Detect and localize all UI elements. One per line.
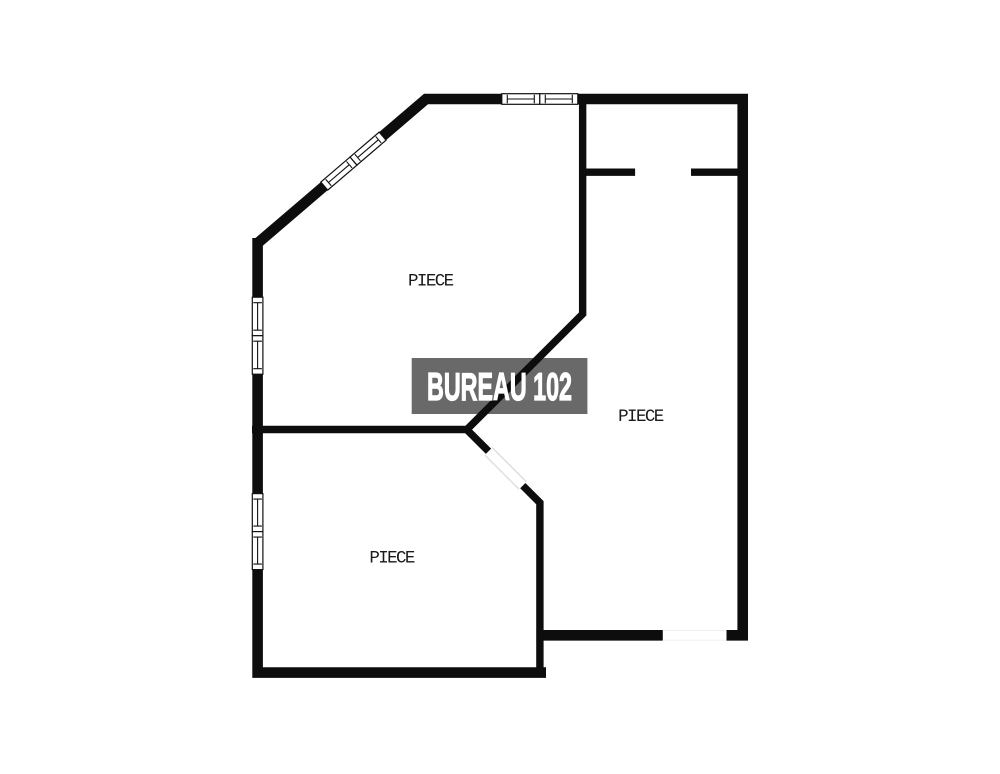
- svg-text:PIECE: PIECE: [408, 272, 454, 292]
- svg-text:PIECE: PIECE: [369, 548, 415, 568]
- svg-text:PIECE: PIECE: [618, 407, 664, 427]
- svg-text:BUREAU 102: BUREAU 102: [427, 366, 572, 409]
